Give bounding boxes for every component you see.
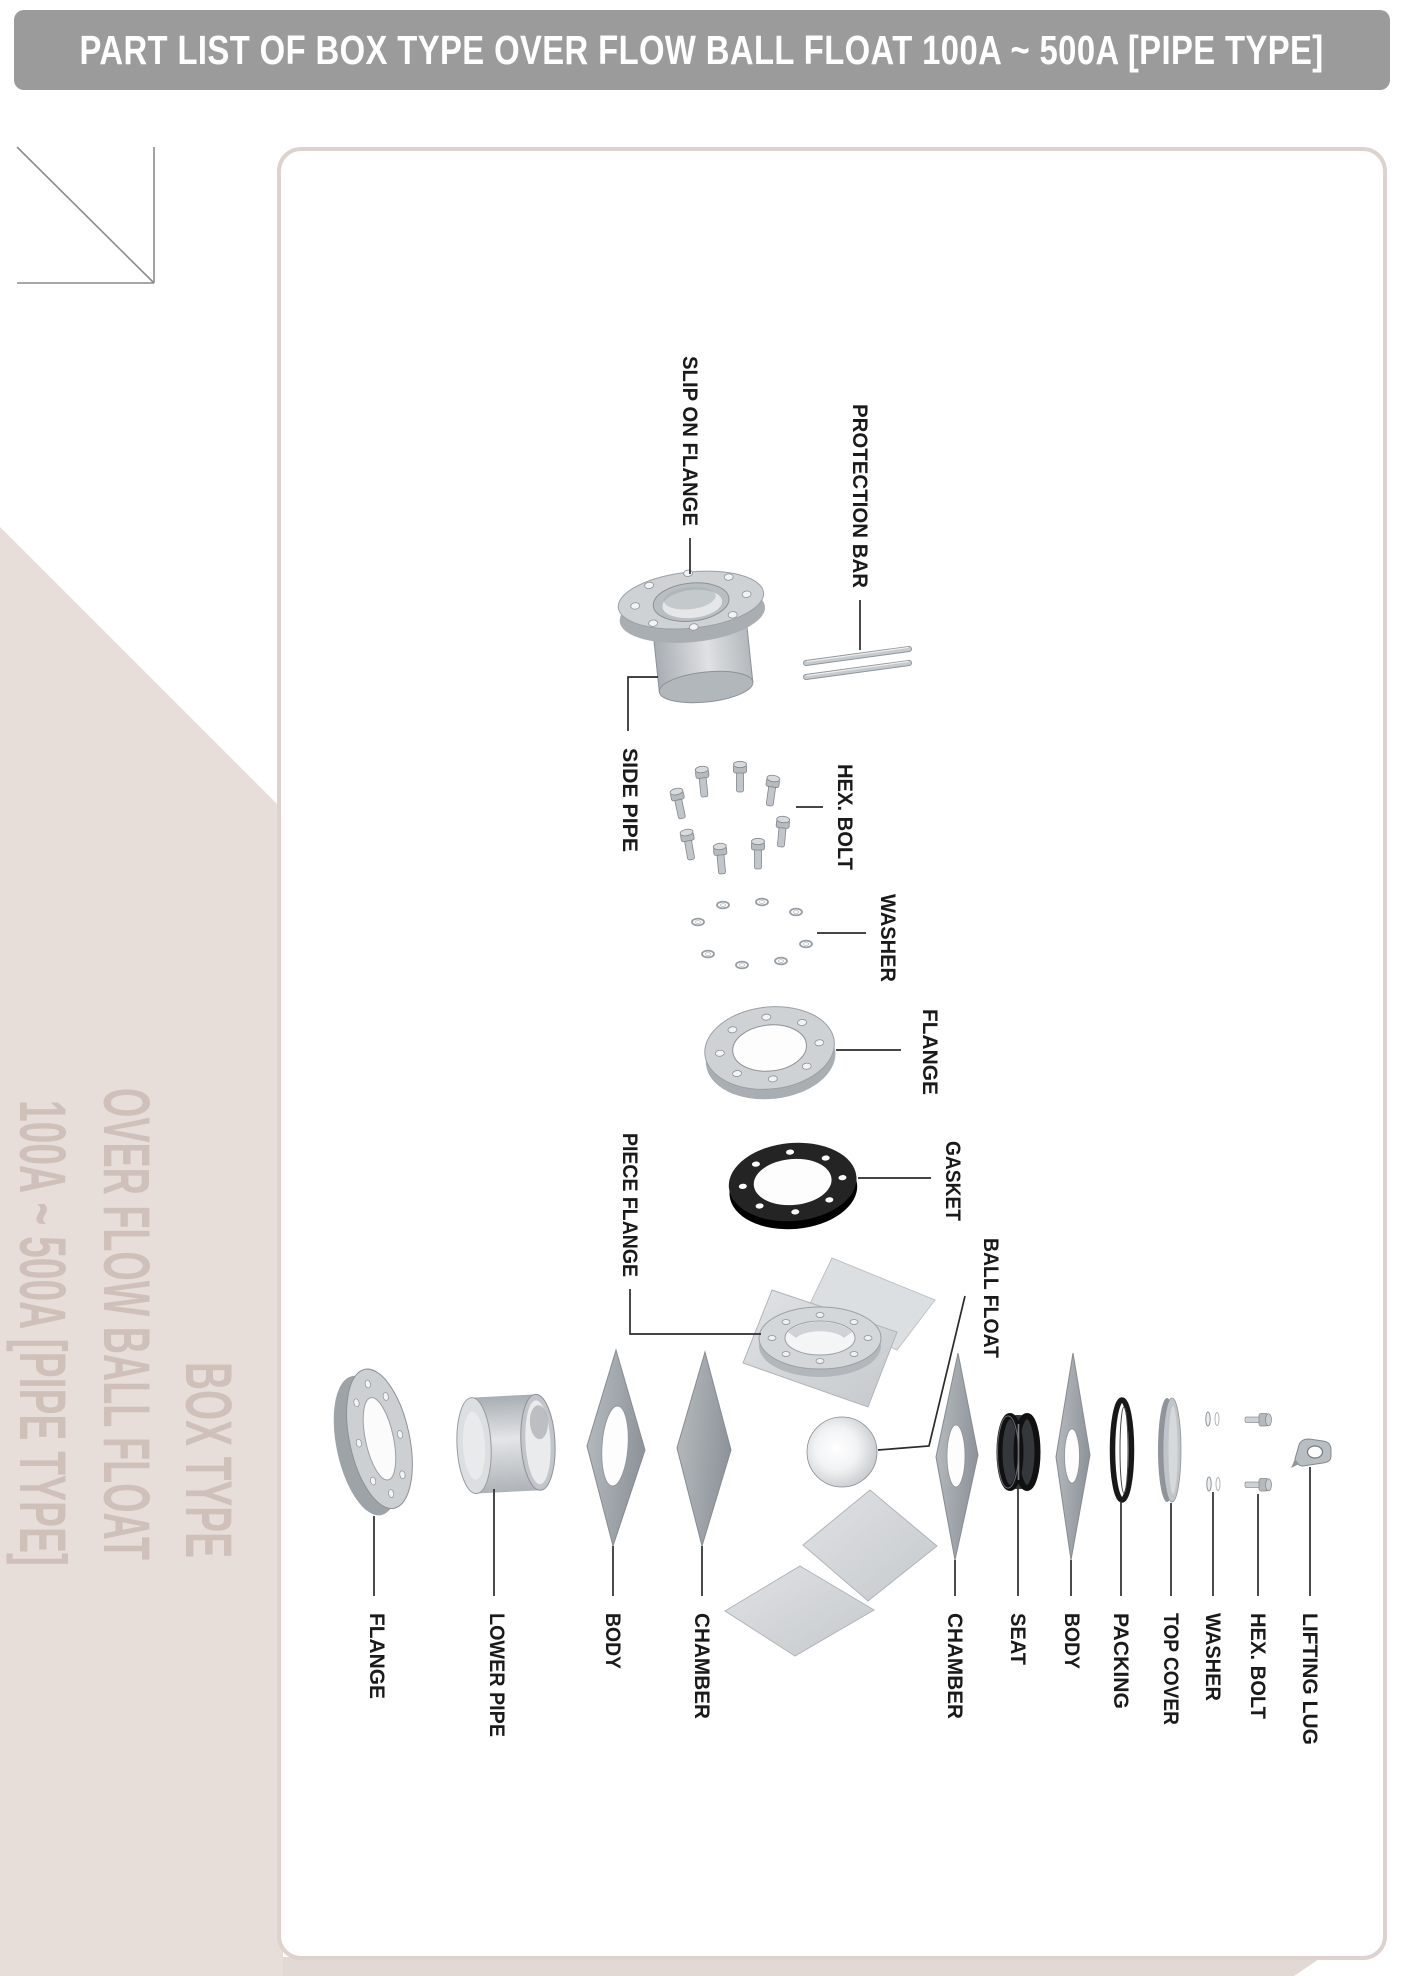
- label-hex-bolt-bottom: HEX. BOLT: [1246, 1613, 1269, 1719]
- packing-part: [1113, 1400, 1132, 1500]
- label-seat: SEAT: [1006, 1613, 1029, 1665]
- label-piece-flange: PIECE FLANGE: [618, 1133, 641, 1277]
- lifting-lug-part: [1291, 1439, 1331, 1468]
- hex-bolt-top-part: [669, 761, 790, 874]
- label-lifting-lug: LIFTING LUG: [1298, 1613, 1321, 1745]
- body-left-part: [587, 1350, 645, 1546]
- label-slip-on-flange: SLIP ON FLANGE: [678, 356, 701, 526]
- gasket-part: [725, 1138, 860, 1235]
- label-top-cover: TOP COVER: [1159, 1613, 1182, 1725]
- label-chamber-right: CHAMBER: [943, 1613, 966, 1719]
- label-washer-top: WASHER: [876, 894, 899, 982]
- slip-on-flange-part: [615, 562, 774, 710]
- lower-pipe-part: [455, 1393, 558, 1494]
- leader-side-pipe: [628, 677, 658, 731]
- label-lower-pipe: LOWER PIPE: [485, 1613, 508, 1737]
- ball-float-part: [807, 1417, 877, 1487]
- label-flange-mid: FLANGE: [918, 1009, 941, 1095]
- washer-top-part: [692, 899, 812, 969]
- label-gasket: GASKET: [941, 1141, 964, 1221]
- flange-bottom-part: [322, 1363, 425, 1521]
- sidebar-title-line2: OVER FLOW BALL FLOAT: [90, 1088, 164, 1560]
- label-body-left: BODY: [601, 1613, 624, 1669]
- hex-bolt-bottom-part: [1245, 1414, 1272, 1492]
- protection-bar-part: [806, 648, 909, 678]
- seat-part: [998, 1415, 1038, 1489]
- washer-bottom-part: [1206, 1412, 1220, 1491]
- label-side-pipe: SIDE PIPE: [618, 748, 641, 852]
- sidebar-title-line1: BOX TYPE: [172, 1362, 246, 1558]
- corner-mark-icon: [17, 147, 154, 283]
- label-body-right: BODY: [1060, 1613, 1083, 1669]
- sidebar-title-line3: 100A ~ 500A [PIPE TYPE]: [6, 1100, 80, 1566]
- catalog-page: PART LIST OF BOX TYPE OVER FLOW BALL FLO…: [0, 0, 1404, 1976]
- label-washer-bottom: WASHER: [1201, 1613, 1224, 1701]
- label-protection-bar: PROTECTION BAR: [848, 404, 871, 588]
- chamber-right-part: [936, 1353, 978, 1560]
- exploded-diagram: BOX TYPE OVER FLOW BALL FLOAT 100A ~ 500…: [0, 0, 1404, 1976]
- body-right-part: [1056, 1353, 1090, 1560]
- chamber-left-part: [677, 1352, 731, 1546]
- flange-mid-part: [701, 1000, 840, 1105]
- label-ball-float: BALL FLOAT: [979, 1238, 1002, 1358]
- label-packing: PACKING: [1109, 1613, 1132, 1709]
- leader-piece-flange: [630, 1289, 761, 1334]
- label-chamber-left: CHAMBER: [690, 1613, 713, 1719]
- label-hex-bolt-top: HEX. BOLT: [833, 764, 856, 870]
- label-flange-bottom: FLANGE: [365, 1613, 388, 1699]
- top-cover-part: [1158, 1398, 1181, 1502]
